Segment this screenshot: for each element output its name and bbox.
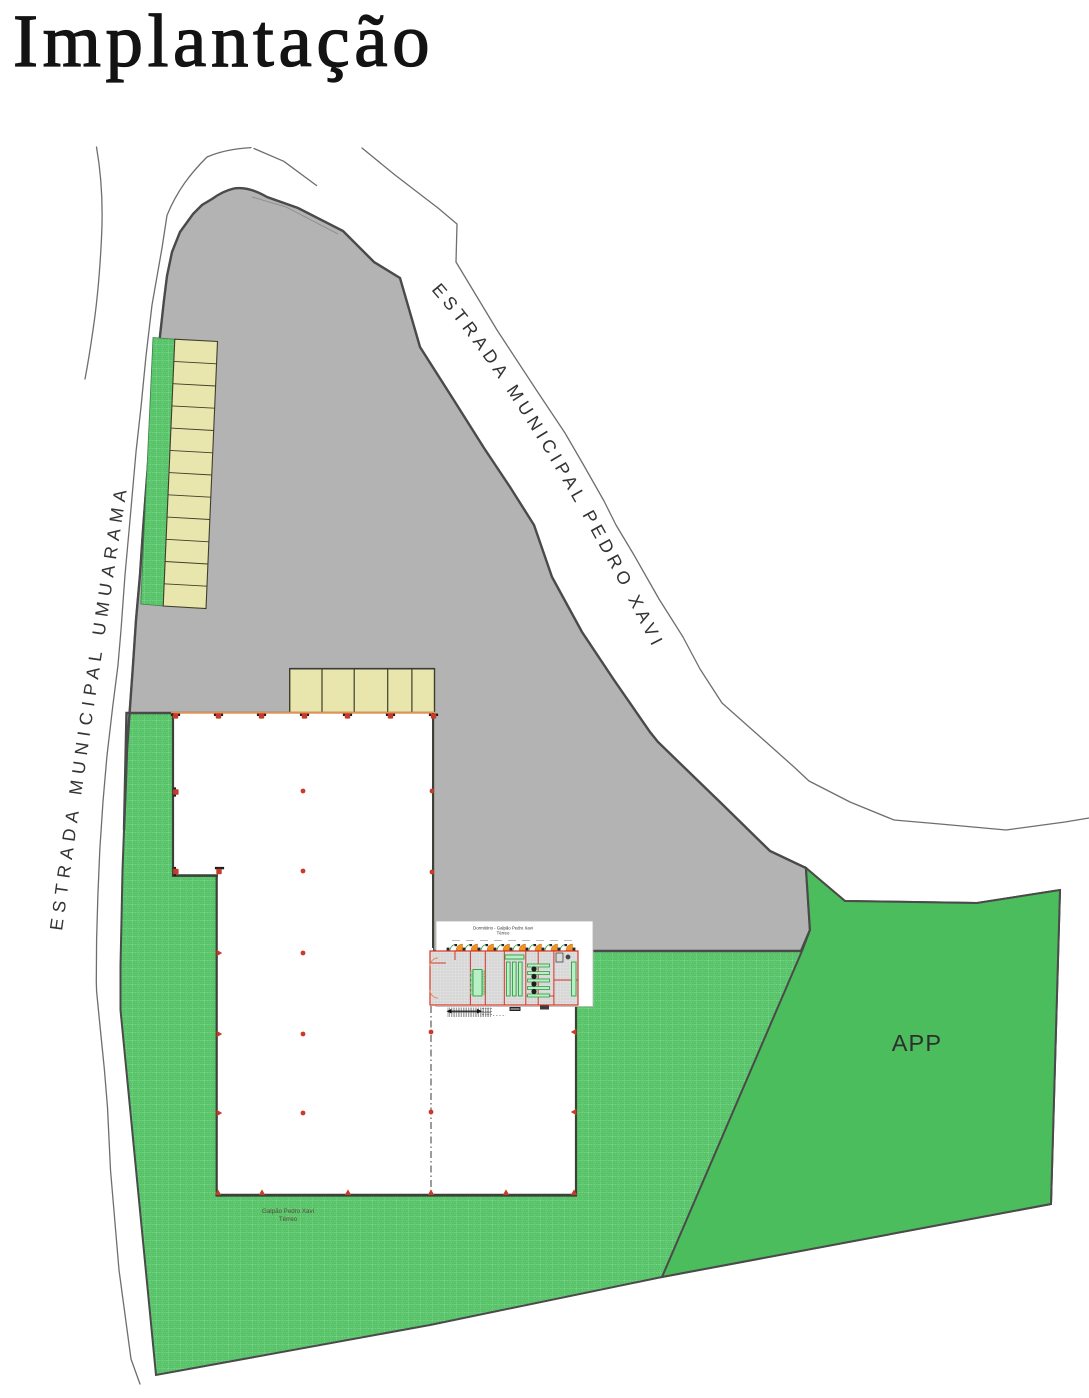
- svg-text:Galpão Pedro Xavi: Galpão Pedro Xavi: [262, 1208, 314, 1215]
- svg-text:Térreo: Térreo: [497, 931, 510, 936]
- svg-text:Implantação: Implantação: [13, 0, 434, 83]
- svg-text:APP: APP: [892, 1030, 943, 1056]
- svg-text:Térreo: Térreo: [279, 1216, 298, 1223]
